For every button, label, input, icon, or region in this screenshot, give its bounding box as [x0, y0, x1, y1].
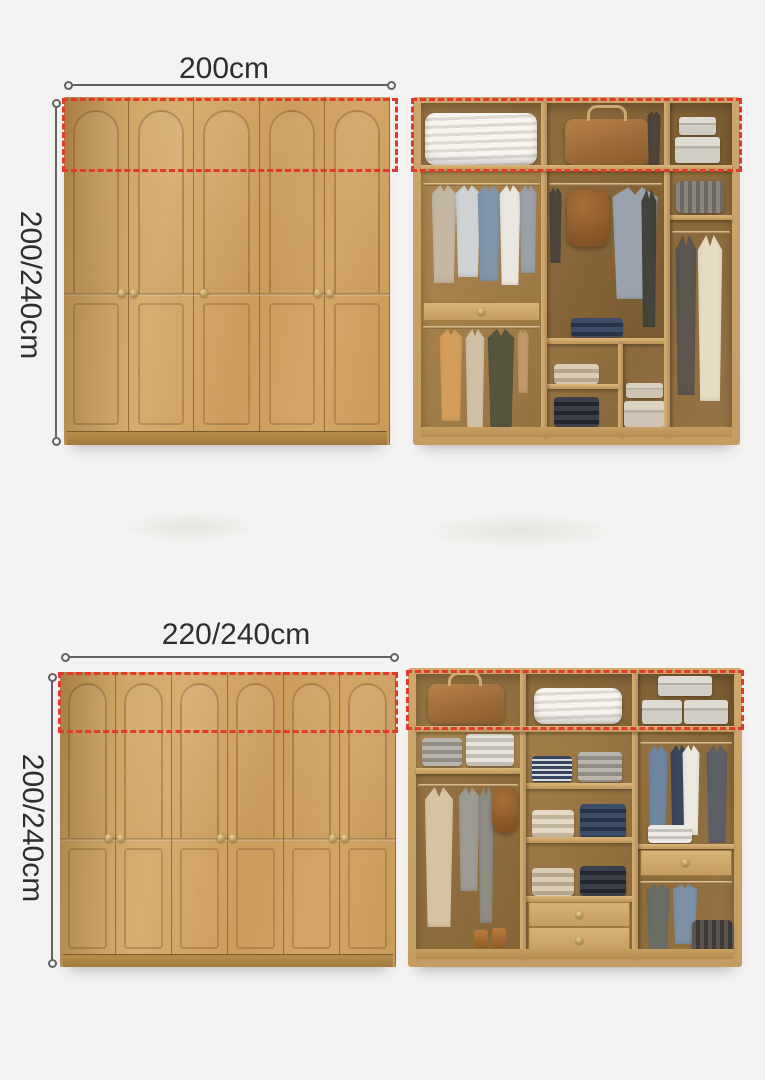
dimension-endpoint: [48, 959, 57, 968]
hanging-dress: [458, 787, 480, 891]
highlight-dashed-box: [406, 670, 744, 730]
door-lower-panel: [124, 848, 163, 949]
folded-stack: [466, 734, 514, 766]
door-knob: [200, 289, 208, 297]
folded-stack: [532, 810, 574, 838]
folded-stack: [422, 738, 462, 766]
highlight-dashed-box: [58, 672, 398, 733]
dimension-endpoint: [387, 81, 396, 90]
door-knob: [329, 834, 337, 842]
shelf: [416, 768, 520, 774]
door-knob: [314, 289, 322, 297]
drawer-knob: [682, 859, 689, 866]
highlight-dashed-box: [62, 98, 398, 172]
clothes-rod: [640, 881, 732, 884]
dimension-endpoint: [61, 653, 70, 662]
dimension-endpoint: [64, 81, 73, 90]
door-knob: [130, 289, 138, 297]
floor-shadow: [420, 514, 620, 548]
door-knob: [341, 834, 349, 842]
hanging-top: [439, 329, 463, 421]
door-knob: [118, 289, 126, 297]
hanging-shirt: [682, 745, 700, 835]
sub-divider: [618, 344, 623, 437]
hanging-garment: [675, 235, 697, 395]
door-lower-panel: [348, 848, 387, 949]
shelf: [526, 783, 632, 789]
door-knob: [217, 834, 225, 842]
highlight-dashed-box: [411, 98, 742, 172]
storage-box: [624, 401, 665, 427]
door-knob: [105, 834, 113, 842]
folded-stack: [571, 318, 623, 337]
height-label: 200/240cm: [15, 753, 49, 903]
hanging-coat: [424, 787, 454, 927]
hanging-shirt: [519, 185, 537, 273]
size-variant-220: 220/240cm 200/240cm: [0, 560, 765, 1080]
folded-stack: [578, 752, 622, 782]
height-dimension-line: [55, 103, 57, 441]
width-label: 220/240cm: [66, 618, 406, 652]
hanging-shirt: [477, 185, 501, 281]
floor-shadow: [120, 512, 260, 542]
hanging-shirt: [465, 329, 485, 433]
dimension-endpoint: [390, 653, 399, 662]
width-label: 200cm: [64, 52, 384, 86]
shoes: [474, 930, 488, 948]
door-lower-panel: [269, 303, 315, 425]
width-dimension-line: [69, 84, 391, 86]
hanging-coat: [706, 745, 728, 843]
folded-stack: [532, 868, 574, 896]
shelf: [547, 338, 664, 344]
wardrobe-floor: [421, 427, 732, 437]
hanging-pants: [641, 189, 657, 327]
clothes-rod: [423, 326, 540, 329]
wardrobe-plinth: [67, 431, 387, 445]
hanging-garment: [549, 187, 562, 263]
backpack: [567, 189, 609, 247]
clothes-rod: [549, 183, 662, 186]
drawer-knob: [478, 308, 485, 315]
shelf: [670, 215, 732, 220]
door-lower-panel: [292, 848, 331, 949]
storage-box: [626, 383, 663, 398]
size-variant-200: 200cm 200/240cm: [0, 0, 765, 560]
hanging-jacket: [487, 329, 515, 427]
door-lower-panel: [203, 303, 249, 425]
folded-stack: [554, 364, 599, 384]
backpack: [492, 787, 518, 833]
dimension-endpoint: [52, 99, 61, 108]
shelf: [638, 844, 734, 849]
wardrobe-size-guide: 200cm 200/240cm: [0, 0, 765, 1080]
folded-stack: [532, 756, 572, 782]
dimension-endpoint: [52, 437, 61, 446]
dimension-endpoint: [48, 673, 57, 682]
shelf: [526, 837, 632, 843]
folded-stack: [580, 866, 626, 896]
height-label: 200/240cm: [13, 210, 47, 360]
hanging-scarf: [517, 329, 529, 393]
folded-stack: [554, 397, 599, 427]
wardrobe-floor: [416, 949, 734, 959]
folded-stack: [648, 825, 692, 843]
hanging-dress: [697, 235, 723, 401]
door-knob: [229, 834, 237, 842]
door-knob: [326, 289, 334, 297]
width-dimension-line: [66, 656, 394, 658]
door-lower-panel: [236, 848, 275, 949]
hanging-shirt: [455, 185, 481, 277]
height-dimension-line: [51, 677, 53, 963]
drawer-knob: [576, 937, 583, 944]
hanging-jacket: [646, 884, 670, 954]
hanging-shirt: [431, 185, 457, 283]
drawer-knob: [576, 911, 583, 918]
door-lower-panel: [138, 303, 184, 425]
hanging-shirt: [499, 185, 521, 285]
clothes-rod: [672, 231, 730, 234]
shoes: [492, 928, 506, 948]
door-lower-panel: [334, 303, 380, 425]
wardrobe-plinth: [63, 954, 393, 967]
clothes-rod: [640, 742, 732, 745]
fabric-basket: [676, 181, 724, 213]
folded-stack: [580, 804, 626, 838]
door-knob: [117, 834, 125, 842]
shelf: [547, 384, 618, 389]
door-lower-panel: [180, 848, 219, 949]
